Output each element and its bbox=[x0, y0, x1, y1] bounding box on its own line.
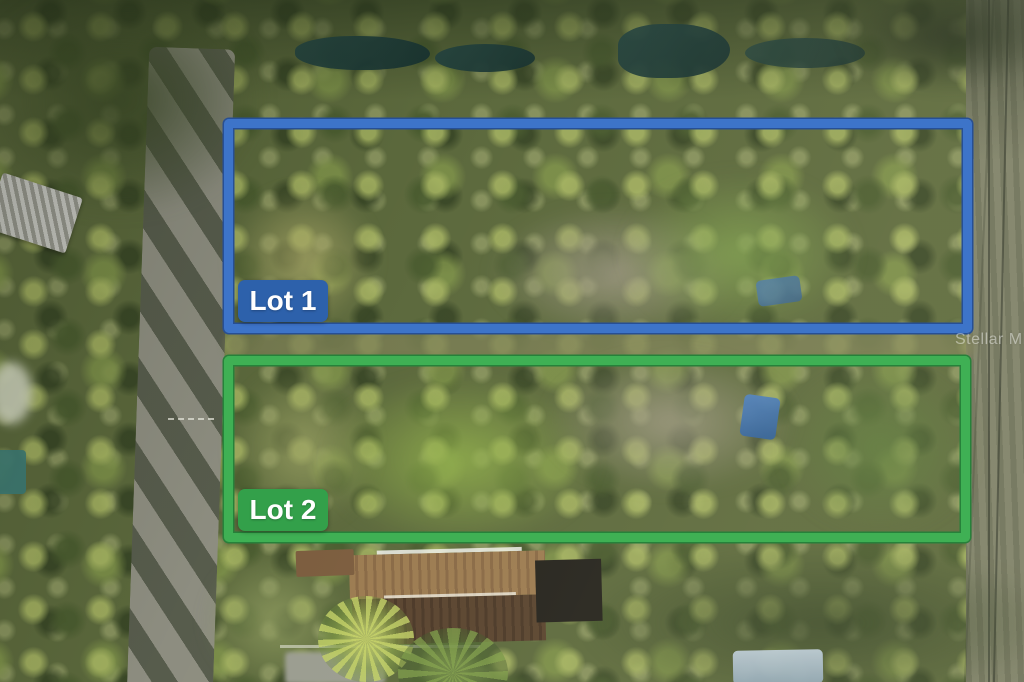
lot2-boundary-outline bbox=[224, 356, 970, 542]
canal-water bbox=[295, 36, 430, 70]
canal-water bbox=[435, 44, 535, 72]
lot1-boundary-outline bbox=[224, 119, 972, 333]
pale-tree-patch bbox=[0, 362, 32, 424]
lot1-label: Lot 1 bbox=[238, 280, 328, 322]
blue-tarp bbox=[733, 649, 824, 682]
mls-watermark: Stellar MLS bbox=[955, 331, 1024, 349]
roof-upper-slope bbox=[349, 550, 546, 599]
lot2-label: Lot 2 bbox=[238, 489, 328, 531]
shed-roof bbox=[296, 549, 355, 577]
roof-shadow-section bbox=[535, 559, 603, 623]
aerial-photo: Lot 1 Lot 2 Stellar MLS bbox=[0, 0, 1024, 682]
teal-tarp bbox=[0, 450, 26, 494]
road-marking bbox=[168, 418, 214, 420]
